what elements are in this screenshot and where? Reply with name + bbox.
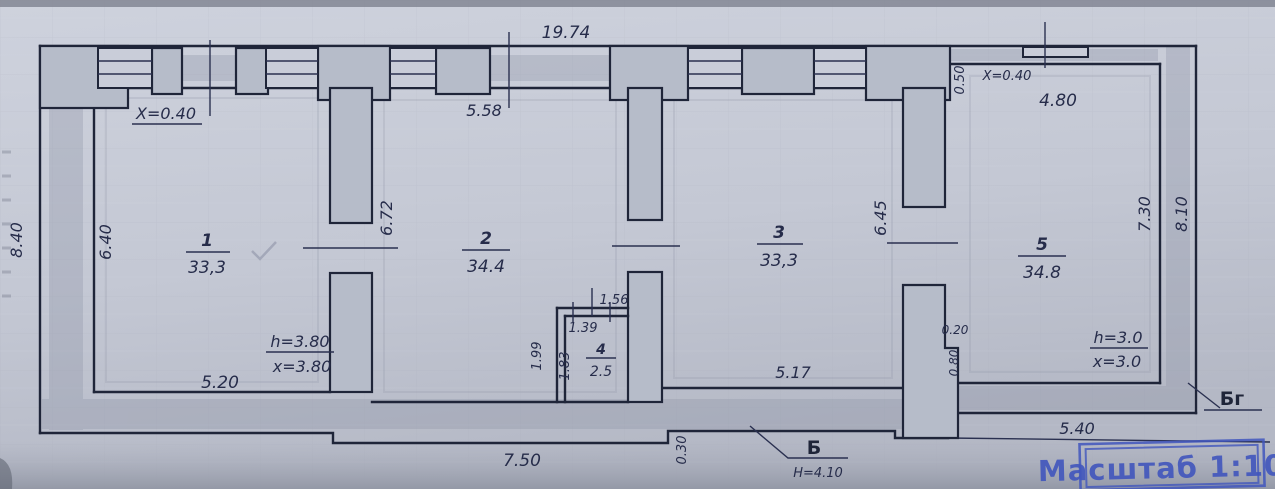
dim-room1-height: 6.40	[96, 224, 115, 260]
room-area: 2.5	[590, 364, 612, 380]
window-icon	[266, 48, 318, 88]
dim-bottom-step: 0.30	[675, 436, 690, 465]
section-marker-b: Б	[807, 437, 821, 459]
dim-room2-height: 6.72	[377, 200, 396, 236]
section-marker-bg: Бг	[1220, 388, 1244, 410]
window-icon	[688, 48, 742, 88]
dim-room4-inner-height: 1.83	[558, 352, 573, 381]
room-area: 33,3	[760, 251, 798, 271]
dim-room2-top: 5.58	[466, 101, 502, 120]
dim-room5-height-inner: 7.30	[1135, 196, 1154, 232]
room-area: 34.8	[1023, 263, 1061, 283]
dim-room5-wall-offset: X=0.40	[982, 69, 1032, 84]
stamp-text: Масштаб 1:100	[1037, 448, 1275, 489]
dim-room4-inner-width: 1.39	[569, 321, 598, 336]
room-area: 34.4	[467, 257, 505, 277]
dim-step-large: 0.80	[947, 349, 961, 376]
dim-room4-top: 1.56	[600, 293, 629, 308]
window-icon	[1023, 47, 1088, 57]
room-area: 33,3	[188, 258, 226, 278]
dim-overall-top: 19.74	[542, 23, 591, 43]
dim-room5-x: x=3.0	[1092, 352, 1141, 371]
dim-room1-width: 5.20	[201, 373, 239, 393]
room-number: 1	[201, 231, 213, 251]
dim-step-small: 0.20	[942, 323, 969, 337]
dim-room3-width: 5.17	[775, 363, 811, 382]
room-number: 4	[595, 342, 606, 358]
dim-left-outer: 8.40	[7, 222, 26, 258]
room-number: 3	[773, 223, 785, 243]
room-number: 2	[480, 229, 492, 249]
window-icon	[390, 48, 436, 88]
dim-right-outer: 8.10	[1172, 196, 1191, 232]
dim-room3-height: 6.45	[871, 200, 890, 236]
dim-bottom-left: 7.50	[503, 451, 541, 471]
floor-plan-photo: 19.74 X=0.40 5.58 8.40 6.40 1 33,3 6.72 …	[0, 0, 1275, 489]
dim-room1-x: x=3.80	[272, 357, 332, 376]
dim-room5-ceiling: h=3.0	[1094, 328, 1143, 347]
dim-room5-offset: 0.50	[953, 66, 968, 95]
dim-room1-wall-offset: X=0.40	[135, 104, 196, 123]
room-number: 5	[1036, 235, 1048, 255]
window-icon	[98, 48, 152, 88]
dim-room5-top: 4.80	[1039, 91, 1077, 111]
dim-room1-ceiling: h=3.80	[270, 332, 329, 351]
dim-bottom-right: 5.40	[1059, 419, 1095, 438]
photo-edge-top	[0, 0, 1275, 7]
window-icon	[814, 48, 866, 88]
section-marker-b-height: H=4.10	[793, 466, 843, 481]
dim-room4-left: 1.99	[530, 342, 545, 371]
floor-plan-canvas: 19.74 X=0.40 5.58 8.40 6.40 1 33,3 6.72 …	[0, 0, 1275, 489]
